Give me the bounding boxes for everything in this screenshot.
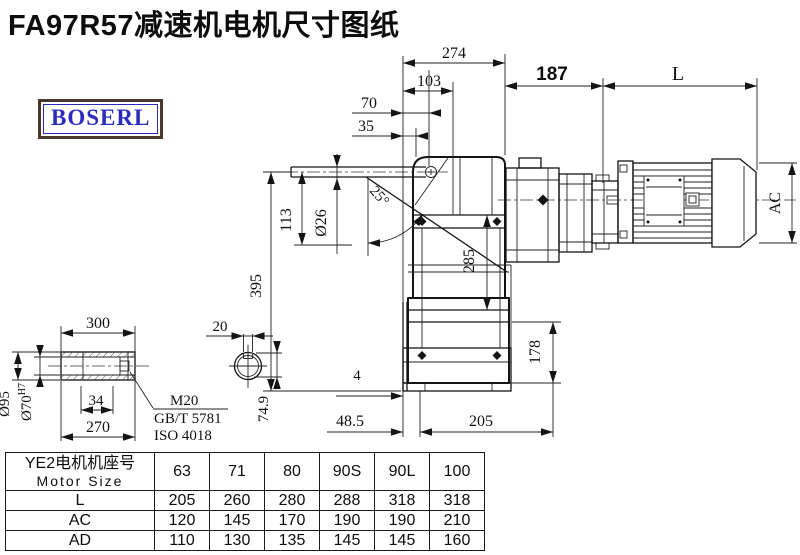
table-cell: 288 xyxy=(320,491,375,511)
dim-178-label: 178 xyxy=(527,340,544,364)
table-cell: 170 xyxy=(265,511,320,531)
table-row: AC 120 145 170 190 190 210 xyxy=(6,511,485,531)
dim-205-label: 205 xyxy=(469,413,493,430)
dim-274-label: 274 xyxy=(442,45,466,62)
table-header-row: YE2电机机座号 Motor Size 63 71 80 90S 90L 100 xyxy=(6,453,485,491)
table-cell: 280 xyxy=(265,491,320,511)
col-header: 90S xyxy=(320,453,375,491)
dim-270-label: 270 xyxy=(86,419,110,436)
thread-standard-iso: ISO 4018 xyxy=(154,428,212,444)
dimension-group-bottom: 4 48.5 205 xyxy=(327,368,553,437)
table-cell: 145 xyxy=(375,531,430,551)
dimension-group-left: 395 113 Ø26 25° 285 178 xyxy=(248,154,561,391)
table-cell: 205 xyxy=(155,491,210,511)
row-label: L xyxy=(6,491,155,511)
col-header: 90L xyxy=(375,453,430,491)
technical-drawing: 274 103 70 35 187 L AC 395 113 Ø26 xyxy=(0,40,800,490)
table-cell: 318 xyxy=(430,491,485,511)
dim-dia95-label: Ø95 xyxy=(0,391,13,417)
col-header: 80 xyxy=(265,453,320,491)
header-en: Motor Size xyxy=(6,473,154,489)
dim-AC-label: AC xyxy=(767,192,784,214)
dia70-tolerance: H7 xyxy=(17,383,28,395)
col-header: 63 xyxy=(155,453,210,491)
table-cell: 145 xyxy=(210,511,265,531)
table-cell: 210 xyxy=(430,511,485,531)
col-header: 71 xyxy=(210,453,265,491)
table-cell: 130 xyxy=(210,531,265,551)
dim-103-label: 103 xyxy=(417,73,441,90)
table-cell: 120 xyxy=(155,511,210,531)
dim-dia26-label: Ø26 xyxy=(313,209,330,237)
table-cell: 110 xyxy=(155,531,210,551)
dim-4-label: 4 xyxy=(353,368,361,384)
table-row: AD 110 130 135 145 145 160 xyxy=(6,531,485,551)
dim-dia70H7-label: Ø70H7 xyxy=(17,383,35,421)
dia70-base: Ø70 xyxy=(19,395,35,421)
dim-70-label: 70 xyxy=(361,95,377,112)
header-cn: YE2电机机座号 xyxy=(6,455,154,473)
dim-25deg-label: 25° xyxy=(366,183,392,209)
motor-side-view xyxy=(618,159,756,247)
row-label: AD xyxy=(6,531,155,551)
motor-size-table: YE2电机机座号 Motor Size 63 71 80 90S 90L 100… xyxy=(5,452,485,551)
dim-113-label: 113 xyxy=(278,208,295,231)
dim-L-label: L xyxy=(672,63,684,85)
dim-20-label: 20 xyxy=(213,319,228,335)
dim-187-label: 187 xyxy=(536,64,568,85)
dim-74-9-label: 74.9 xyxy=(256,396,272,422)
table-header-motor-size: YE2电机机座号 Motor Size xyxy=(6,453,155,491)
table-cell: 160 xyxy=(430,531,485,551)
gearbox-housing xyxy=(403,157,511,391)
hollow-shaft-detail: 300 270 34 Ø95 Ø70H7 M20 GB/T 5781 ISO 4… xyxy=(0,315,228,444)
dim-300-label: 300 xyxy=(86,315,110,332)
table-cell: 135 xyxy=(265,531,320,551)
dim-285-label: 285 xyxy=(461,249,478,273)
col-header: 100 xyxy=(430,453,485,491)
dim-35-label: 35 xyxy=(358,118,374,135)
table-cell: 145 xyxy=(320,531,375,551)
motor-fan-cover xyxy=(712,159,756,247)
thread-spec-label: M20 xyxy=(170,393,198,409)
thread-standard-gbt: GB/T 5781 xyxy=(154,411,222,427)
page-title: FA97R57减速机电机尺寸图纸 xyxy=(8,2,400,44)
dim-48-5-label: 48.5 xyxy=(336,413,364,430)
table-cell: 190 xyxy=(320,511,375,531)
dim-34-label: 34 xyxy=(89,393,105,409)
table-row: L 205 260 280 288 318 318 xyxy=(6,491,485,511)
dim-395-label: 395 xyxy=(248,274,265,298)
row-label: AC xyxy=(6,511,155,531)
table-cell: 318 xyxy=(375,491,430,511)
table-cell: 260 xyxy=(210,491,265,511)
table-cell: 190 xyxy=(375,511,430,531)
